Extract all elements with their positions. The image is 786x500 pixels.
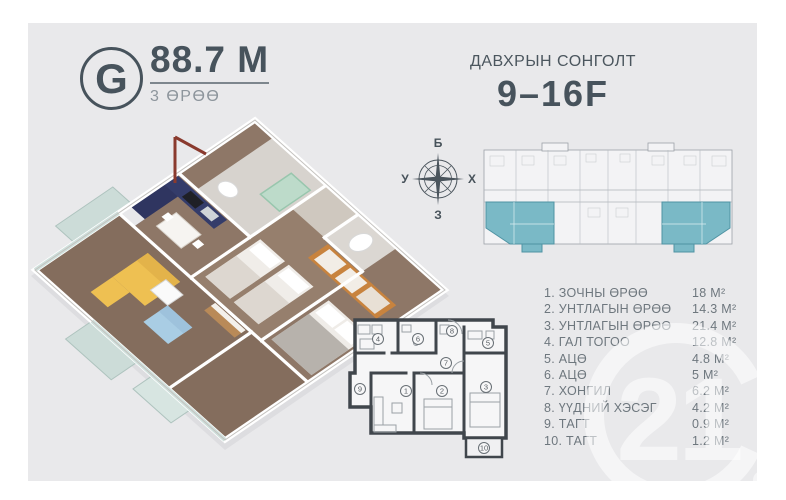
svg-text:6: 6 — [416, 335, 420, 344]
svg-text:8: 8 — [450, 327, 454, 336]
rooms-count-label: 3 ӨРӨӨ — [150, 88, 269, 106]
room-list-item: 8. ҮҮДНИЙ ХЭСЭГ4.2 M² — [544, 400, 744, 416]
unit-letter: G — [95, 58, 128, 100]
compass-north-label: Б — [434, 136, 443, 150]
brochure-card: G 88.7 M 3 ӨРӨӨ ДАВХРЫН СОНГОЛТ 9–16F — [28, 23, 757, 481]
room-label: 8. ҮҮДНИЙ ХЭСЭГ — [544, 400, 692, 416]
room-list-item: 3. УНТЛАГЫН ӨРӨӨ21.4 M² — [544, 318, 744, 334]
room-list-item: 10. ТАГТ1.2 M² — [544, 433, 744, 449]
room-list-item: 5. АЦӨ4.8 M² — [544, 351, 744, 367]
room-list-item: 4. ГАЛ ТОГОО12.8 M² — [544, 334, 744, 350]
room-area-list: 1. ЗОЧНЫ ӨРӨӨ18 M² 2. УНТЛАГЫН ӨРӨӨ14.3 … — [544, 285, 744, 449]
room-area: 6.2 M² — [692, 383, 744, 399]
room-label: 2. УНТЛАГЫН ӨРӨӨ — [544, 301, 692, 317]
floorplan-brochure-page: { "header": { "unit_letter": "G", "area_… — [0, 0, 786, 500]
floor-range-value: 9–16F — [428, 73, 678, 115]
room-label: 9. ТАГТ — [544, 416, 692, 432]
highlighted-unit-right — [662, 202, 730, 252]
building-level-plan — [480, 140, 736, 258]
room-area: 14.3 M² — [692, 301, 744, 317]
highlighted-unit-left — [486, 202, 554, 252]
svg-text:9: 9 — [358, 385, 362, 394]
svg-text:3: 3 — [484, 383, 488, 392]
room-list-item: 6. АЦӨ5 M² — [544, 367, 744, 383]
room-label: 6. АЦӨ — [544, 367, 692, 383]
compass-east-label: Х — [468, 172, 476, 186]
room-area: 0.9 M² — [692, 416, 744, 432]
room-area: 21.4 M² — [692, 318, 744, 334]
room-label: 7. ХОНГИЛ — [544, 383, 692, 399]
room-area: 12.8 M² — [692, 334, 744, 350]
room-area: 1.2 M² — [692, 433, 744, 449]
compass-icon: Б З У Х — [398, 135, 478, 221]
compass-west-label: У — [401, 172, 409, 186]
unit-letter-badge: G — [80, 47, 143, 110]
floor-selection-block: ДАВХРЫН СОНГОЛТ 9–16F — [428, 53, 678, 115]
room-label: 5. АЦӨ — [544, 351, 692, 367]
svg-text:2: 2 — [440, 387, 444, 396]
room-label: 1. ЗОЧНЫ ӨРӨӨ — [544, 285, 692, 301]
room-label: 10. ТАГТ — [544, 433, 692, 449]
room-area: 4.2 M² — [692, 400, 744, 416]
total-area-value: 88.7 M — [150, 41, 269, 84]
svg-text:10: 10 — [480, 444, 488, 453]
apartment-2d-plan: 1 2 3 4 5 6 7 8 9 10 — [336, 301, 524, 477]
room-list-item: 7. ХОНГИЛ6.2 M² — [544, 383, 744, 399]
room-area: 5 M² — [692, 367, 744, 383]
room-area: 4.8 M² — [692, 351, 744, 367]
room-list-item: 1. ЗОЧНЫ ӨРӨӨ18 M² — [544, 285, 744, 301]
svg-text:5: 5 — [486, 339, 490, 348]
room-label: 4. ГАЛ ТОГОО — [544, 334, 692, 350]
room-list-item: 2. УНТЛАГЫН ӨРӨӨ14.3 M² — [544, 301, 744, 317]
room-label: 3. УНТЛАГЫН ӨРӨӨ — [544, 318, 692, 334]
svg-text:4: 4 — [376, 335, 380, 344]
floor-selection-label: ДАВХРЫН СОНГОЛТ — [428, 53, 678, 71]
svg-text:1: 1 — [404, 387, 408, 396]
compass-south-label: З — [434, 208, 442, 221]
area-block: 88.7 M 3 ӨРӨӨ — [150, 41, 269, 106]
svg-text:7: 7 — [444, 359, 448, 368]
room-list-item: 9. ТАГТ0.9 M² — [544, 416, 744, 432]
room-area: 18 M² — [692, 285, 744, 301]
